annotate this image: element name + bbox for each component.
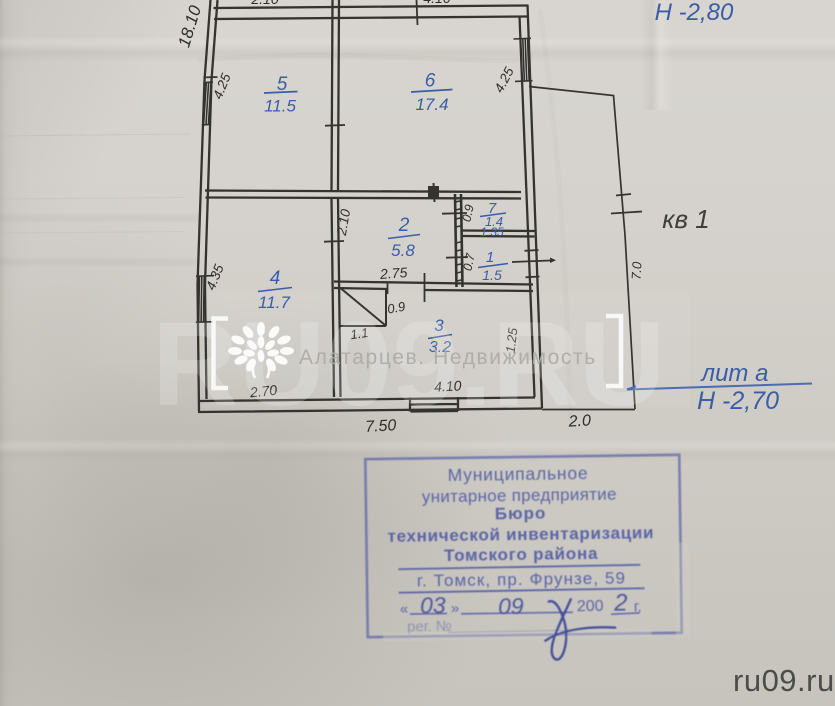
- svg-text:11.5: 11.5: [264, 97, 296, 116]
- svg-text:2.75: 2.75: [379, 264, 409, 282]
- svg-text:0.7: 0.7: [460, 251, 478, 272]
- svg-text:6: 6: [425, 71, 436, 92]
- svg-text:09: 09: [498, 593, 524, 619]
- svg-text:»: »: [451, 600, 460, 617]
- svg-text:5.8: 5.8: [391, 241, 415, 260]
- svg-text:4.25: 4.25: [491, 64, 517, 95]
- svg-text:Н -2,80: Н -2,80: [655, 0, 734, 26]
- svg-text:Бюро: Бюро: [495, 504, 547, 524]
- svg-text:2: 2: [613, 590, 628, 617]
- svg-text:технической инвентаризации: технической инвентаризации: [387, 523, 654, 546]
- svg-text:03: 03: [420, 592, 446, 618]
- svg-text:лит а: лит а: [700, 360, 769, 387]
- svg-text:1.5: 1.5: [482, 267, 502, 283]
- svg-text:Н -2,70: Н -2,70: [697, 387, 779, 415]
- svg-text:ru09.ru: ru09.ru: [733, 663, 835, 698]
- svg-text:4.10: 4.10: [423, 0, 450, 6]
- svg-text:2.10: 2.10: [334, 207, 354, 237]
- svg-text:2: 2: [398, 215, 410, 236]
- svg-text:7.0: 7.0: [629, 261, 645, 281]
- svg-text:4.25: 4.25: [210, 71, 234, 101]
- svg-text:кв 1: кв 1: [662, 204, 710, 234]
- svg-text:Томского района: Томского района: [444, 544, 599, 565]
- svg-text:«: «: [400, 601, 409, 618]
- svg-text:4: 4: [270, 268, 281, 289]
- svg-text:г.: г.: [634, 598, 642, 615]
- svg-text:Муниципальное: Муниципальное: [447, 463, 588, 485]
- svg-text:18.10: 18.10: [174, 3, 205, 50]
- svg-text:1: 1: [486, 249, 494, 266]
- svg-text:Алатарцев. Недвижимость: Алатарцев. Недвижимость: [299, 346, 597, 369]
- svg-text:0.9: 0.9: [459, 203, 476, 223]
- svg-text:17.4: 17.4: [415, 95, 448, 114]
- svg-text:1.35: 1.35: [480, 225, 504, 239]
- svg-text:200: 200: [577, 598, 604, 615]
- svg-text:2.10: 2.10: [250, 0, 278, 7]
- svg-text:г. Томск, пр. Фрунзе, 59: г. Томск, пр. Фрунзе, 59: [417, 569, 626, 591]
